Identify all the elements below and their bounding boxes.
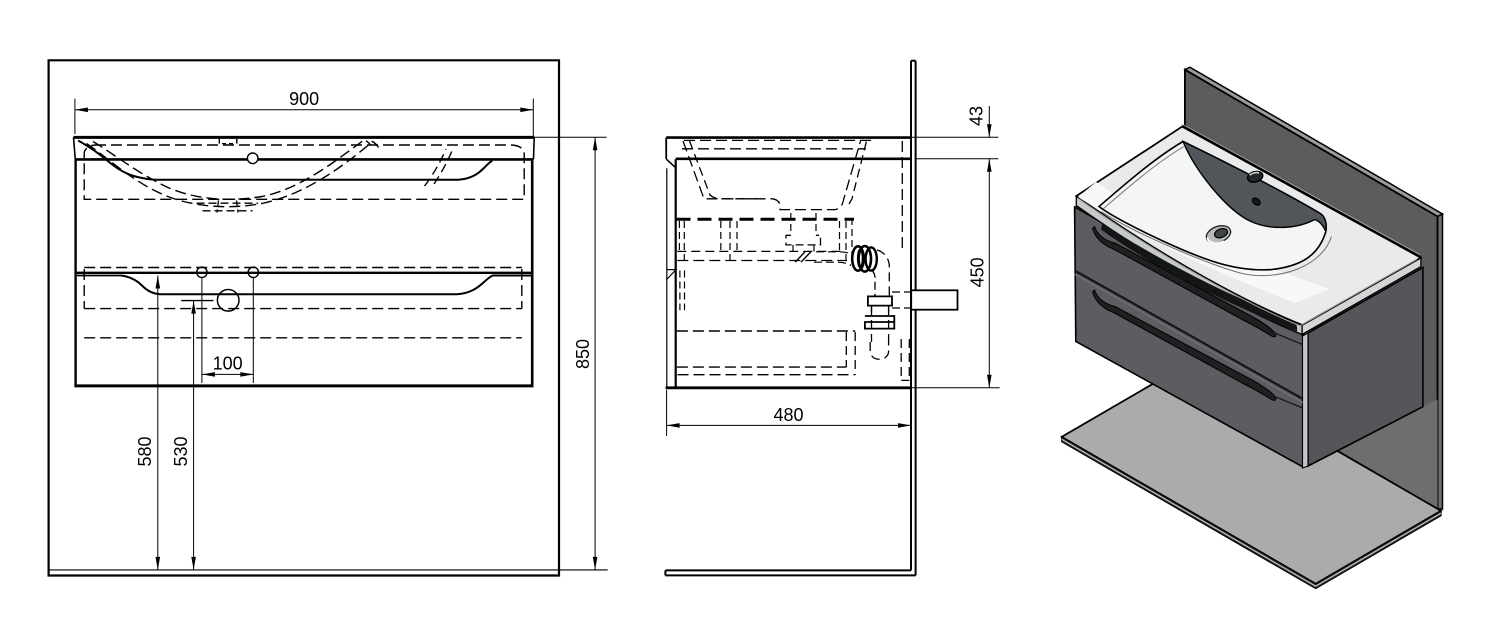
svg-text:480: 480: [773, 405, 803, 425]
svg-text:43: 43: [967, 106, 987, 126]
svg-text:900: 900: [289, 89, 319, 109]
svg-text:580: 580: [135, 436, 155, 466]
svg-text:100: 100: [213, 354, 243, 374]
svg-text:450: 450: [967, 257, 987, 287]
svg-text:530: 530: [171, 436, 191, 466]
svg-text:850: 850: [573, 339, 593, 369]
